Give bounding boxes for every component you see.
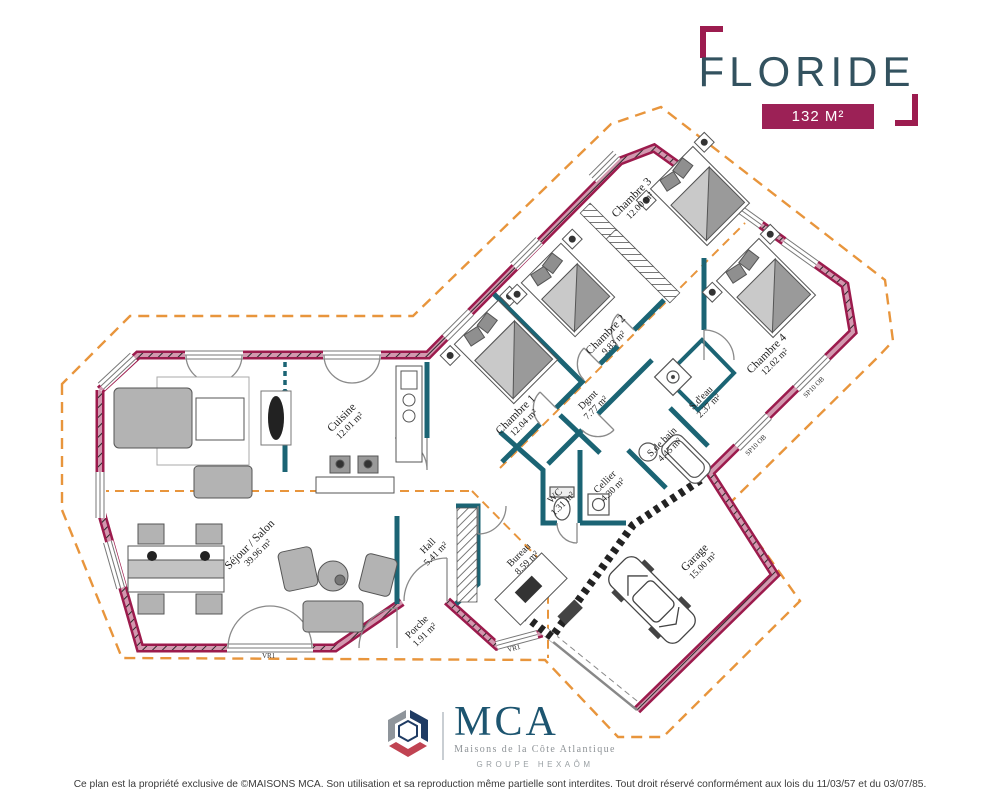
- floor-plan-page: { "header": { "title": "FLORIDE", "area_…: [0, 0, 1000, 800]
- title-block: FLORIDE 132 M²: [688, 22, 926, 122]
- window-icon: [97, 352, 137, 391]
- logo-divider: [442, 712, 444, 760]
- room-label-dgmt: Dgmt7.77 m²: [574, 386, 610, 422]
- window-icon: [780, 236, 820, 269]
- room-label-cuisine: Cuisine12.01 m²: [325, 401, 366, 442]
- footer-logo: MCA Maisons de la Côte Atlantique GROUPE…: [0, 702, 1000, 769]
- room-label-porche: Porche1.91 m²: [403, 613, 439, 649]
- mca-cube-icon: [384, 708, 432, 764]
- corner-bracket-icon: [895, 94, 918, 126]
- area-badge: 132 M²: [762, 104, 874, 129]
- window-icon: [509, 236, 543, 270]
- window-icon: [323, 349, 381, 361]
- room-label-chambre4: Chambre 412.02 m²: [745, 332, 797, 384]
- logo-group-name: GROUPE HEXAÔM: [454, 760, 616, 769]
- window-label-vr1: VR1: [262, 652, 276, 660]
- room-label-sejour: Séjour / Salon39.96 m²: [223, 517, 286, 580]
- window-icon: [102, 540, 127, 589]
- logo-wordmark: MCA: [454, 702, 616, 742]
- window-icon: [94, 472, 106, 518]
- copyright-text: Ce plan est la propriété exclusive de ©M…: [0, 779, 1000, 790]
- room-label-chambre1: Chambre 112.04 m²: [494, 393, 546, 445]
- logo-subtitle: Maisons de la Côte Atlantique: [454, 744, 616, 755]
- garage-door: [542, 628, 642, 710]
- room-label-garage: Garage15.00 m²: [679, 542, 719, 582]
- plan-title: FLORIDE: [688, 48, 926, 96]
- window-icon: [185, 349, 243, 361]
- room-label-hall: Hall5.41 m²: [414, 532, 450, 568]
- bed-icon: [702, 224, 828, 350]
